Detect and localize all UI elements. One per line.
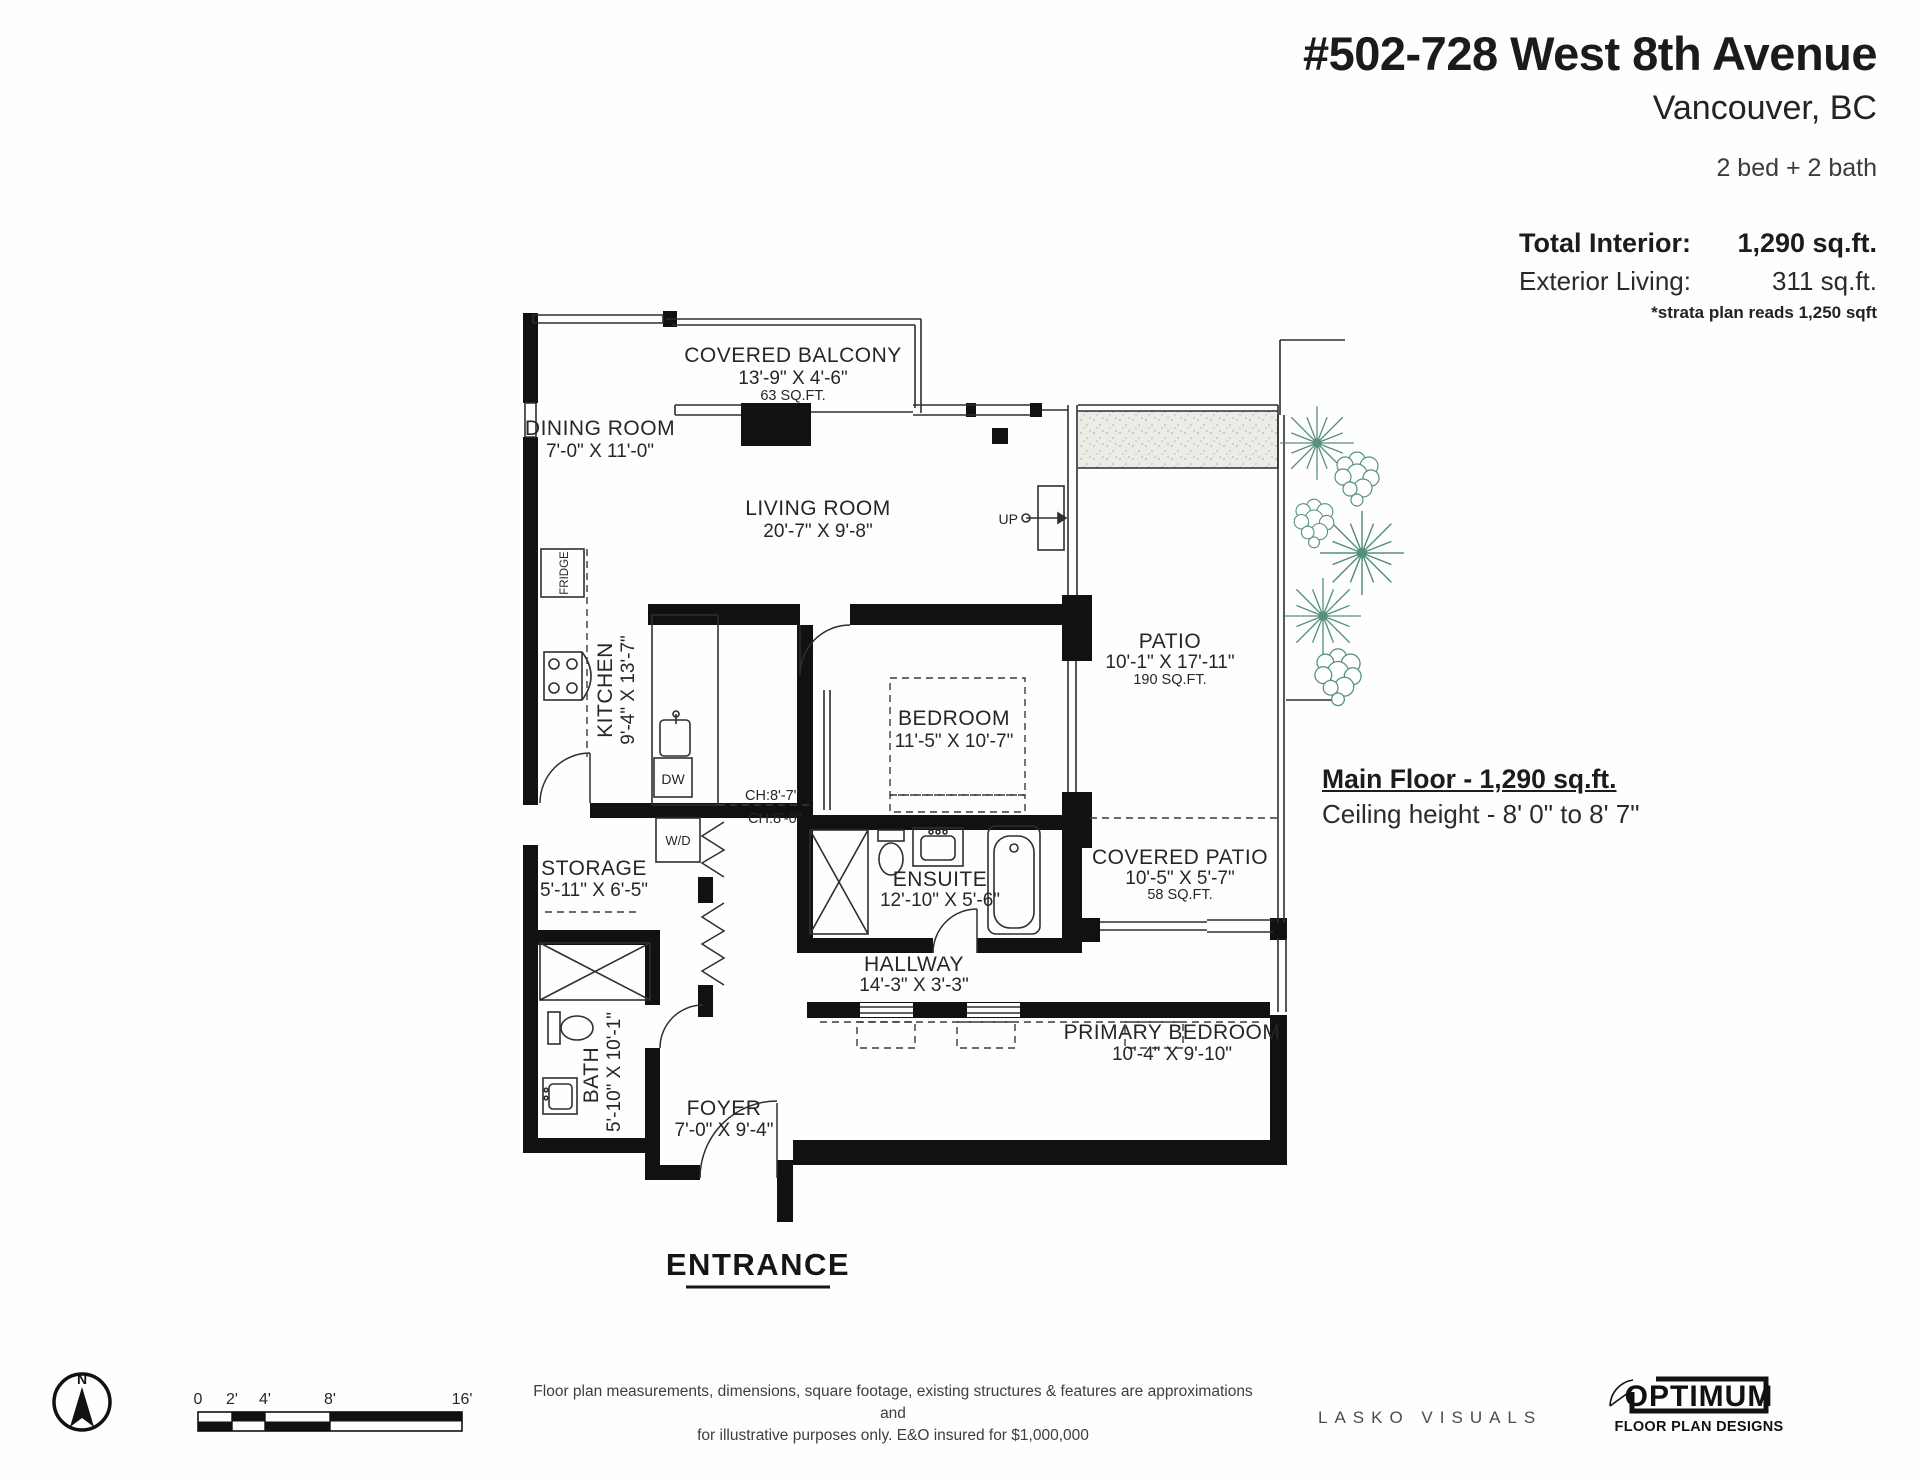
- label-primary-bedroom: PRIMARY BEDROOM: [1064, 1021, 1281, 1044]
- label-foyer: FOYER: [687, 1097, 762, 1120]
- svg-text:7'-0" X 9'-4": 7'-0" X 9'-4": [675, 1120, 774, 1141]
- disclaimer-line2: for illustrative purposes only. E&O insu…: [520, 1425, 1266, 1447]
- ensuite-shower-icon: [810, 830, 868, 934]
- north-arrow-icon: N: [54, 1371, 110, 1430]
- svg-text:7'-0" X 11'-0": 7'-0" X 11'-0": [546, 441, 654, 462]
- bifold-doors-icon: [702, 822, 724, 985]
- scale-tick: 0: [194, 1391, 203, 1408]
- optimum-logo: OPTIMUM FLOOR PLAN DESIGNS: [1610, 1379, 1783, 1435]
- header: #502-728 West 8th Avenue Vancouver, BC 2…: [1303, 26, 1877, 183]
- label-covered-patio: COVERED PATIO: [1092, 846, 1268, 869]
- stairs-up-icon: [1022, 486, 1066, 550]
- svg-text:12'-10" X 5'-6": 12'-10" X 5'-6": [880, 890, 1000, 911]
- total-interior-row: Total Interior: 1,290 sq.ft.: [1519, 228, 1877, 259]
- floor-plan-page: COVERED BALCONY 13'-9" X 4'-6" 63 SQ.FT.…: [0, 0, 1920, 1483]
- svg-text:190 SQ.FT.: 190 SQ.FT.: [1133, 672, 1206, 688]
- svg-text:63 SQ.FT.: 63 SQ.FT.: [760, 388, 825, 404]
- scale-tick: 8': [324, 1391, 336, 1408]
- svg-text:10'-4" X 9'-10": 10'-4" X 9'-10": [1112, 1044, 1232, 1065]
- logo-subtitle: FLOOR PLAN DESIGNS: [1615, 1419, 1784, 1435]
- label-kitchen: KITCHEN: [594, 642, 617, 738]
- disclaimer: Floor plan measurements, dimensions, squ…: [520, 1381, 1266, 1447]
- label-covered-balcony: COVERED BALCONY: [684, 344, 902, 367]
- scale-tick: 16': [452, 1391, 473, 1408]
- wd-label: W/D: [665, 833, 690, 848]
- area-totals: Total Interior: 1,290 sq.ft. Exterior Li…: [1519, 228, 1877, 323]
- label-living: LIVING ROOM: [745, 497, 891, 520]
- svg-text:14'-3" X 3'-3": 14'-3" X 3'-3": [859, 975, 968, 996]
- scale-tick: 2': [226, 1391, 238, 1408]
- walkway-stipple: [1078, 411, 1278, 468]
- label-dining: DINING ROOM: [525, 417, 675, 440]
- bed-bath-summary: 2 bed + 2 bath: [1303, 154, 1877, 183]
- bathtub-icon: [988, 826, 1040, 934]
- scale-bar: 0 2' 4' 8' 16': [194, 1391, 473, 1431]
- stove-icon: [544, 652, 591, 700]
- disclaimer-line1: Floor plan measurements, dimensions, squ…: [520, 1381, 1266, 1425]
- label-bedroom: BEDROOM: [898, 707, 1010, 730]
- svg-text:9'-4" X 13'-7": 9'-4" X 13'-7": [618, 635, 639, 744]
- label-patio: PATIO: [1139, 630, 1201, 653]
- ceiling-height-note: Ceiling height - 8' 0" to 8' 7": [1322, 799, 1639, 830]
- svg-text:5'-10" X 10'-1": 5'-10" X 10'-1": [604, 1012, 625, 1132]
- closet-icon: [857, 1022, 915, 1048]
- bath-toilet-icon: [548, 1012, 593, 1044]
- ch-upper-label: CH:8'-7": [745, 788, 799, 804]
- plant-icon: [1335, 452, 1379, 506]
- page-title: #502-728 West 8th Avenue: [1303, 26, 1877, 81]
- logo-title: OPTIMUM: [1625, 1380, 1774, 1413]
- bath-sink-icon: [543, 1078, 577, 1114]
- svg-text:11'-5" X 10'-7": 11'-5" X 10'-7": [895, 731, 1014, 752]
- plant-icon: [1285, 578, 1361, 654]
- closet-icon: [957, 1022, 1015, 1048]
- plant-icon: [1315, 649, 1361, 706]
- label-ensuite: ENSUITE: [893, 868, 988, 891]
- entrance-label: ENTRANCE: [666, 1247, 850, 1282]
- label-hallway: HALLWAY: [864, 953, 964, 976]
- total-interior-value: 1,290 sq.ft.: [1737, 228, 1877, 259]
- bath-shower-icon: [540, 943, 650, 1000]
- main-floor-title: Main Floor - 1,290 sq.ft.: [1322, 764, 1639, 795]
- total-interior-label: Total Interior:: [1519, 228, 1691, 259]
- label-storage: STORAGE: [541, 857, 647, 880]
- ch-lower-label: CH:8'-0": [748, 811, 802, 827]
- exterior-living-label: Exterior Living:: [1519, 266, 1691, 297]
- up-label: UP: [999, 511, 1018, 527]
- strata-note: *strata plan reads 1,250 sqft: [1519, 303, 1877, 323]
- floor-plan-drawing: COVERED BALCONY 13'-9" X 4'-6" 63 SQ.FT.…: [0, 0, 1920, 1483]
- ensuite-sink-icon: [913, 828, 963, 866]
- plants: [1280, 406, 1404, 705]
- main-floor-note: Main Floor - 1,290 sq.ft. Ceiling height…: [1322, 764, 1639, 830]
- dw-label: DW: [661, 771, 685, 787]
- kitchen-sink-icon: [660, 711, 690, 756]
- svg-text:13'-9" X 4'-6": 13'-9" X 4'-6": [738, 368, 847, 389]
- city-subtitle: Vancouver, BC: [1303, 89, 1877, 128]
- svg-text:10'-1" X 17'-11": 10'-1" X 17'-11": [1105, 652, 1234, 673]
- plant-icon: [1294, 499, 1334, 548]
- exterior-living-row: Exterior Living: 311 sq.ft.: [1519, 266, 1877, 297]
- svg-text:20'-7" X 9'-8": 20'-7" X 9'-8": [763, 521, 872, 542]
- exterior-living-value: 311 sq.ft.: [1772, 266, 1877, 297]
- svg-text:10'-5" X 5'-7": 10'-5" X 5'-7": [1125, 868, 1234, 889]
- scale-tick: 4': [259, 1391, 271, 1408]
- fridge-label: FRIDGE: [559, 551, 571, 595]
- svg-text:58 SQ.FT.: 58 SQ.FT.: [1147, 887, 1212, 903]
- svg-text:5'-11" X 6'-5": 5'-11" X 6'-5": [540, 880, 648, 901]
- credit-lasko-visuals: LASKO VISUALS: [1318, 1408, 1528, 1428]
- svg-text:N: N: [77, 1371, 87, 1387]
- label-bath: BATH: [580, 1047, 603, 1103]
